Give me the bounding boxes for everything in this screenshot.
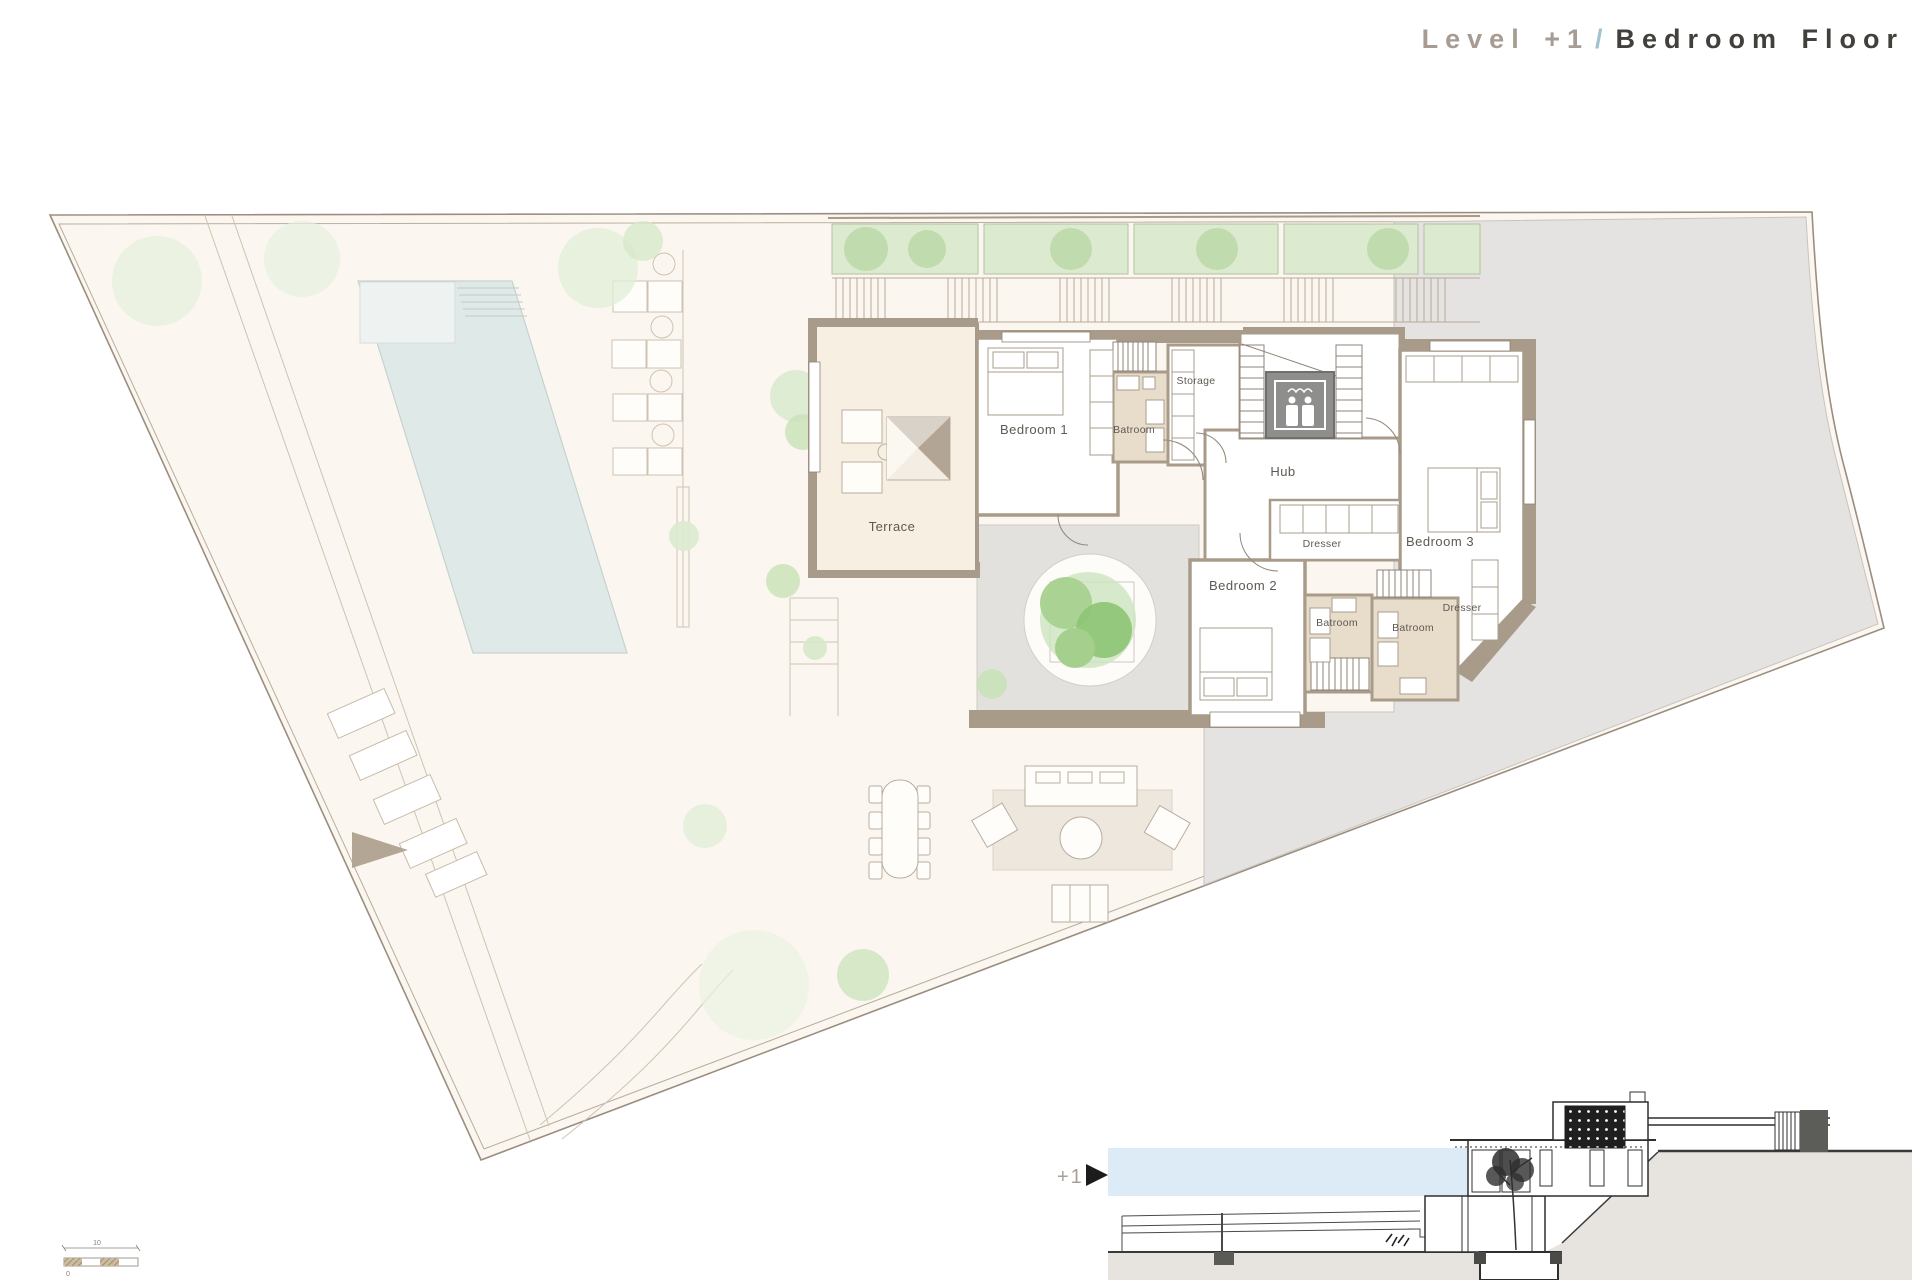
site-plan: Terrace Bedroom 1 Batroom Storage Hub Dr…	[50, 212, 1884, 1160]
scale-zero-label: 0	[66, 1271, 70, 1278]
label-bedroom2: Bedroom 2	[1209, 578, 1277, 593]
label-bathroom2: Batroom	[1316, 617, 1358, 629]
coffee-table	[1060, 817, 1102, 859]
level-arrow-icon	[1086, 1164, 1108, 1186]
label-bedroom3: Bedroom 3	[1406, 534, 1474, 549]
outdoor-bench	[1052, 885, 1108, 922]
label-dresser2: Dresser	[1443, 602, 1482, 614]
label-bedroom1: Bedroom 1	[1000, 422, 1068, 437]
label-dresser1: Dresser	[1303, 538, 1342, 550]
section-screen-wall	[1565, 1106, 1625, 1148]
courtyard-tree	[1040, 572, 1136, 668]
dining-table	[869, 780, 930, 879]
label-hub: Hub	[1270, 464, 1295, 479]
elevator	[1266, 372, 1334, 438]
scale-length-label: 10	[93, 1240, 101, 1247]
section-deck	[1122, 1211, 1444, 1252]
label-storage: Storage	[1177, 375, 1216, 387]
skylight-pyramid	[887, 417, 950, 480]
scale-bar: 10 0	[62, 1240, 140, 1278]
label-bathroom3: Batroom	[1392, 622, 1434, 634]
section-drawing: +1	[1057, 1092, 1912, 1280]
pool-shelf	[360, 282, 455, 343]
floor-plan-canvas: Terrace Bedroom 1 Batroom Storage Hub Dr…	[0, 0, 1920, 1280]
section-level-label: +1	[1057, 1166, 1084, 1188]
label-terrace: Terrace	[869, 519, 916, 534]
courtyard	[977, 525, 1199, 715]
label-bathroom1: Batroom	[1113, 424, 1155, 436]
